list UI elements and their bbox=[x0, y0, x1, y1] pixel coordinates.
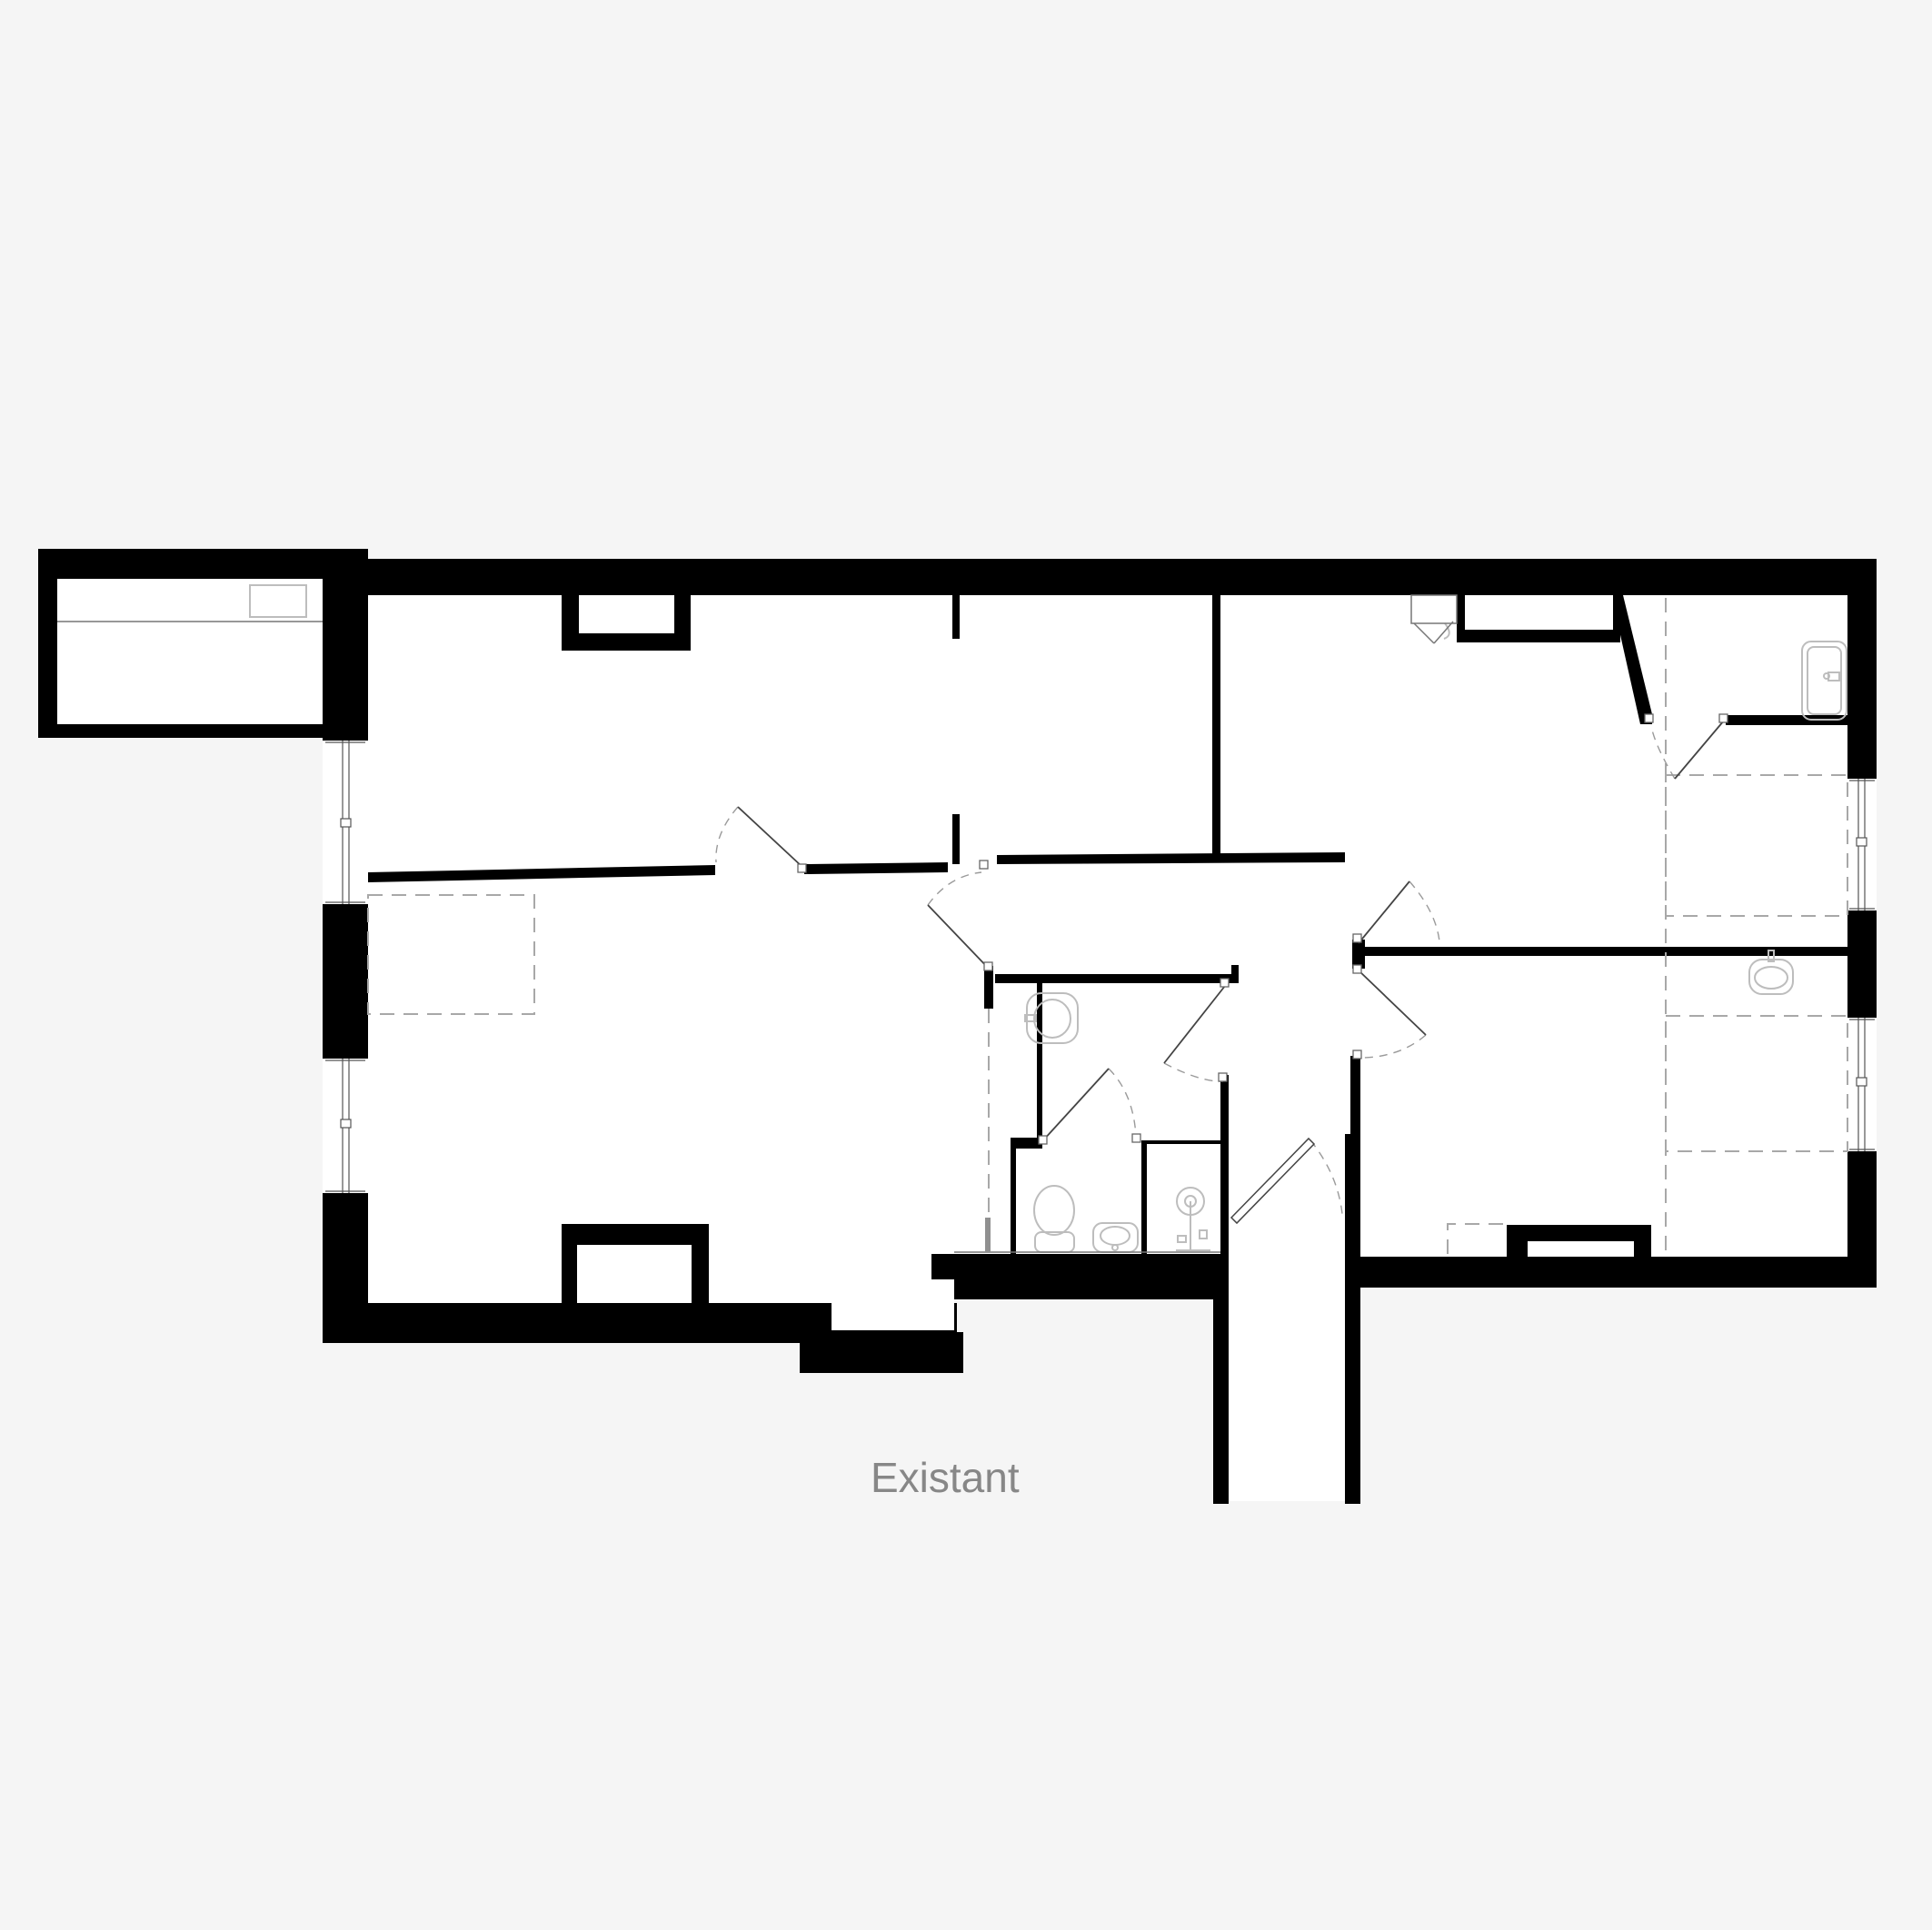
bottom-wall-right bbox=[1360, 1257, 1877, 1288]
window-right-c-mullion bbox=[1857, 838, 1867, 846]
wc-left-wall bbox=[1011, 1149, 1016, 1299]
bottom-wall-bath bbox=[931, 1254, 1213, 1299]
window-left-a-mullion bbox=[341, 819, 351, 827]
stub-bottom bbox=[952, 814, 960, 864]
wing-top-wall bbox=[38, 549, 368, 579]
wing-interior bbox=[57, 579, 323, 724]
hinge bbox=[1719, 714, 1728, 722]
bump-recess bbox=[832, 1279, 954, 1330]
corridor-left-wall bbox=[1213, 1254, 1229, 1504]
door-post bbox=[1352, 940, 1365, 969]
wc-divider-wall bbox=[1141, 1140, 1147, 1299]
hinge bbox=[1353, 934, 1361, 942]
wardrobe-slot bbox=[1528, 1241, 1634, 1257]
hinge bbox=[1132, 1134, 1140, 1142]
window-left-b-mullion bbox=[341, 1119, 351, 1128]
hinge bbox=[1219, 1073, 1227, 1081]
hinge bbox=[798, 864, 806, 872]
floor-plan-drawing: Existant bbox=[0, 0, 1932, 1930]
wc-jog-wall bbox=[1011, 1138, 1042, 1149]
window-right-d-mullion bbox=[1857, 1078, 1867, 1086]
wing-bottom-wall bbox=[38, 724, 368, 738]
hinge bbox=[980, 861, 988, 869]
main-interior bbox=[368, 595, 1847, 1501]
bath-corner-stub bbox=[1231, 965, 1239, 983]
shower-glass-wall bbox=[1147, 1140, 1220, 1144]
hinge bbox=[1645, 714, 1653, 722]
hinge bbox=[984, 962, 992, 970]
floor-plan-page: Existant bbox=[0, 0, 1932, 1930]
hall-jamb-wall bbox=[1350, 1056, 1360, 1138]
washroom-nw-wall bbox=[984, 966, 993, 1009]
washroom-top-wall bbox=[995, 974, 1231, 983]
closet-left-stub bbox=[1457, 595, 1465, 642]
mid-wall-b bbox=[804, 862, 948, 874]
hinge bbox=[1353, 1050, 1361, 1059]
chimney-inner bbox=[579, 595, 674, 633]
right-wall bbox=[1847, 559, 1877, 1288]
closet-bottom-wall bbox=[1457, 630, 1620, 642]
radiator-tick bbox=[985, 1218, 991, 1252]
stub-top bbox=[952, 595, 960, 639]
shower-right-wall bbox=[1220, 1075, 1229, 1257]
top-wall bbox=[323, 559, 1877, 595]
annotations: Existant bbox=[871, 1454, 1020, 1501]
niche-inner bbox=[577, 1245, 692, 1303]
partition-north bbox=[1212, 595, 1220, 860]
bottom-bump bbox=[800, 1332, 963, 1373]
corridor-right-wall bbox=[1345, 1134, 1360, 1504]
plan-title: Existant bbox=[871, 1454, 1020, 1501]
hinge bbox=[1220, 979, 1229, 987]
wing-left-wall bbox=[38, 549, 57, 738]
hinge bbox=[1039, 1136, 1047, 1144]
hinge bbox=[1353, 965, 1361, 973]
